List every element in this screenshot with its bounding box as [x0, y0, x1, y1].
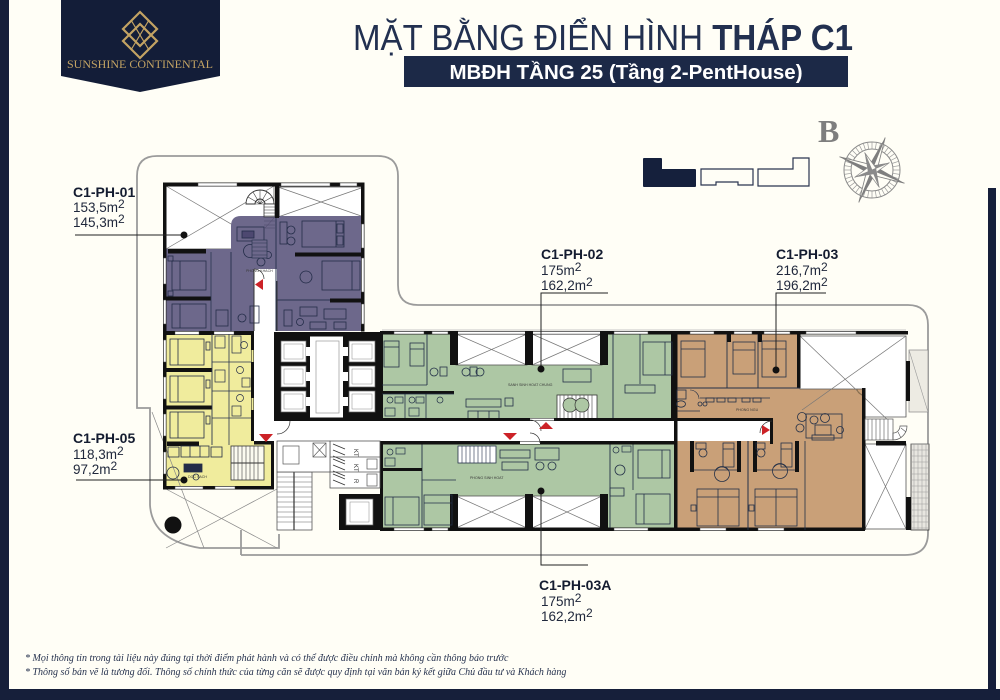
svg-text:SUNSHINE CONTINENTAL: SUNSHINE CONTINENTAL	[67, 59, 213, 71]
svg-text:145,3m2: 145,3m2	[73, 212, 125, 230]
svg-text:PHONG NGU: PHONG NGU	[736, 408, 759, 412]
svg-text:C1-PH-01: C1-PH-01	[73, 184, 135, 200]
svg-text:* Mọi thông tin trong tài liệu: * Mọi thông tin trong tài liệu này đúng …	[25, 653, 509, 664]
svg-text:PHONG KHACH: PHONG KHACH	[246, 269, 273, 273]
svg-text:162,2m2: 162,2m2	[541, 606, 593, 624]
svg-text:162,2m2: 162,2m2	[541, 275, 593, 293]
svg-text:C1-PH-02: C1-PH-02	[541, 246, 603, 262]
svg-text:B: B	[818, 113, 839, 149]
svg-text:* Thông số bản vẽ là tương đối: * Thông số bản vẽ là tương đối. Thông số…	[25, 667, 566, 678]
svg-text:SANH SINH HOAT CHUNG: SANH SINH HOAT CHUNG	[508, 383, 553, 387]
svg-text:MBĐH TẦNG 25 (Tầng 2-PentHouse: MBĐH TẦNG 25 (Tầng 2-PentHouse)	[449, 61, 802, 84]
svg-text:MẶT BẰNG ĐIỂN HÌNH THÁP C1: MẶT BẰNG ĐIỂN HÌNH THÁP C1	[353, 16, 853, 58]
svg-text:PHONG SINH HOAT: PHONG SINH HOAT	[470, 476, 504, 480]
svg-text:KT: KT	[352, 449, 358, 457]
svg-text:DOC SACH: DOC SACH	[188, 475, 207, 479]
svg-text:C1-PH-03: C1-PH-03	[776, 246, 838, 262]
svg-text:R: R	[352, 479, 358, 484]
svg-text:C1-PH-05: C1-PH-05	[73, 430, 135, 446]
svg-text:KT: KT	[352, 464, 358, 472]
svg-text:196,2m2: 196,2m2	[776, 275, 828, 293]
